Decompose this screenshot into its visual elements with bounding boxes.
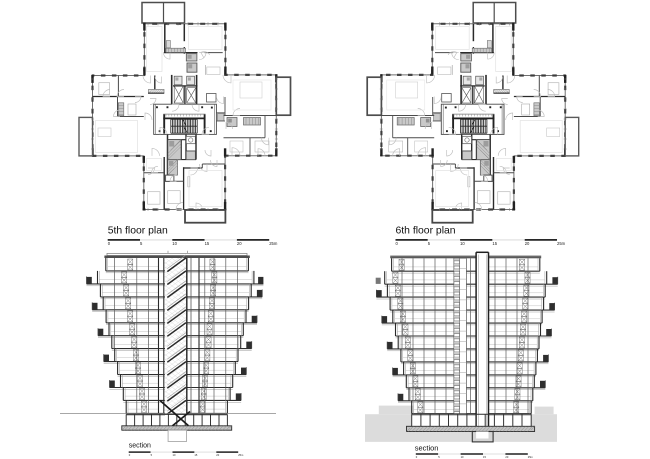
svg-text:15: 15 xyxy=(205,241,210,246)
svg-text:25m: 25m xyxy=(238,453,243,457)
svg-text:section: section xyxy=(415,443,439,452)
svg-text:20: 20 xyxy=(525,241,530,246)
svg-text:15: 15 xyxy=(492,241,497,246)
svg-text:section: section xyxy=(129,442,151,449)
svg-text:6th floor plan: 6th floor plan xyxy=(396,226,456,237)
svg-text:10: 10 xyxy=(172,241,177,246)
svg-text:5th floor plan: 5th floor plan xyxy=(108,226,168,237)
svg-text:25m: 25m xyxy=(557,241,566,246)
svg-text:25m: 25m xyxy=(269,241,278,246)
svg-text:20: 20 xyxy=(237,241,242,246)
svg-text:25m: 25m xyxy=(528,455,533,459)
svg-text:10: 10 xyxy=(460,241,465,246)
